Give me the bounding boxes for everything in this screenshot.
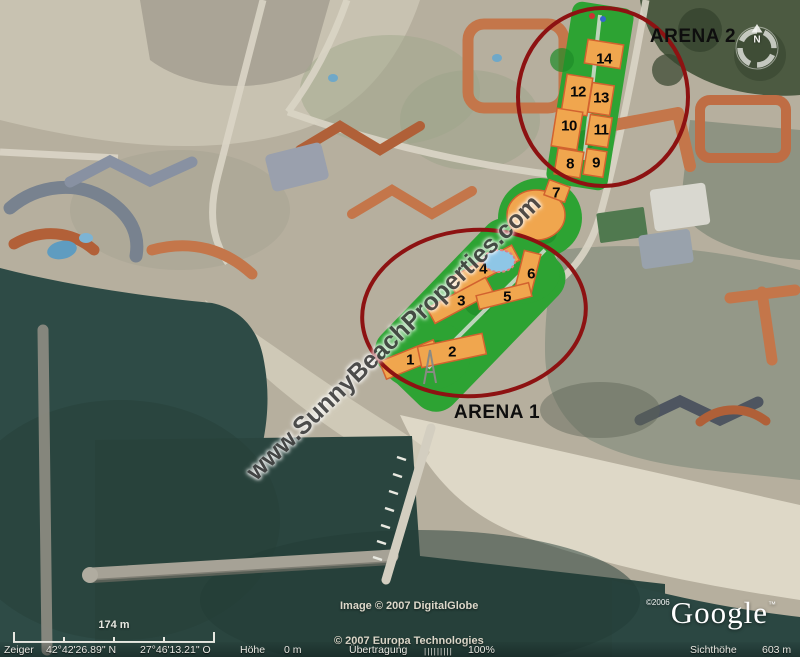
imagery-credit: Image © 2007 DigitalGlobe	[340, 600, 478, 612]
building-number-13: 13	[593, 91, 609, 106]
scale-label: 174 m	[98, 619, 129, 631]
google-logo-tm: ™	[768, 600, 776, 609]
building-number-9: 9	[592, 156, 600, 171]
pointer-longitude: 27°46'13.21" O	[140, 644, 211, 656]
building-number-10: 10	[561, 119, 577, 134]
streaming-value: 100%	[468, 644, 495, 656]
streaming-progress-bars: |||||||||	[424, 646, 453, 656]
eye-altitude-value: 603 m	[762, 644, 791, 656]
google-logo-text: Google	[671, 595, 768, 630]
building-number-7: 7	[552, 186, 560, 201]
building-number-8: 8	[566, 157, 574, 172]
eye-altitude-label: Sichthöhe	[690, 644, 737, 656]
building-number-6: 6	[527, 267, 535, 282]
arena-2-label: ARENA 2	[650, 26, 736, 48]
pointer-latitude: 42°42'26.89" N	[46, 644, 116, 656]
building-number-2: 2	[448, 345, 456, 360]
pointer-label: Zeiger	[4, 644, 34, 656]
google-earth-viewport[interactable]: www.SunnyBeachProperties.com ARENA 2 ARE…	[0, 0, 800, 657]
building-number-12: 12	[570, 85, 586, 100]
elevation-label: Höhe	[240, 644, 265, 656]
building-number-5: 5	[503, 290, 511, 305]
building-number-11: 11	[594, 123, 609, 138]
google-logo-copyright: ©2006	[646, 598, 670, 607]
building-number-14: 14	[596, 52, 612, 67]
elevation-value: 0 m	[284, 644, 302, 656]
compass-north-label: N	[753, 35, 760, 46]
status-bar: Zeiger 42°42'26.89" N 27°46'13.21" O Höh…	[0, 642, 800, 657]
building-number-1: 1	[406, 353, 414, 368]
arena-1-label: ARENA 1	[454, 402, 540, 424]
google-logo: ©2006Google™	[646, 595, 776, 631]
streaming-label: Übertragung	[349, 644, 407, 656]
